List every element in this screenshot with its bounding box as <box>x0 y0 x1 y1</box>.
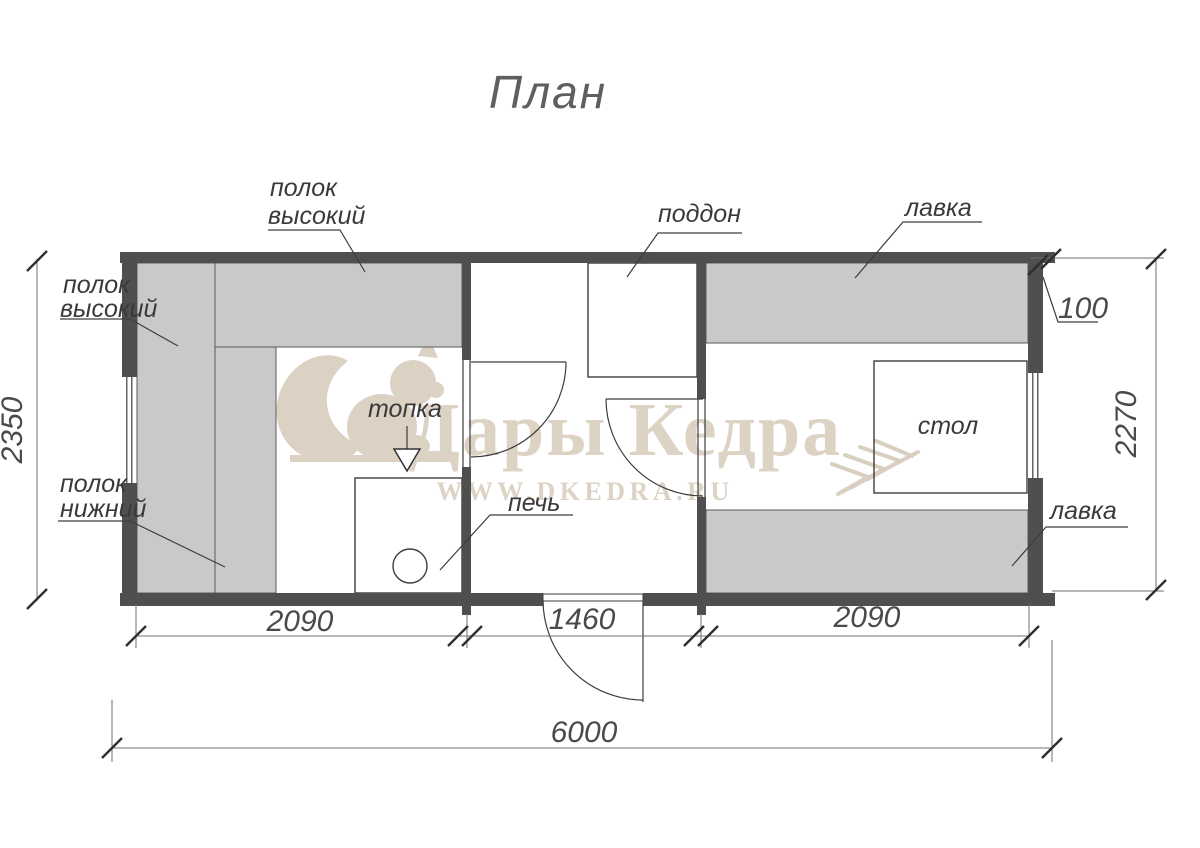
label-shelf-low-line2: нижний <box>60 495 147 523</box>
partition2-lower <box>697 497 706 593</box>
watermark-site: WWW.DKEDRA.RU <box>436 477 733 506</box>
window-left <box>127 377 132 483</box>
bench-top <box>706 263 1028 343</box>
floor-plan-drawing: Дары Кедра WWW.DKEDRA.RU План <box>0 0 1200 848</box>
partition2-upper <box>697 263 706 399</box>
label-bench-bottom: лавка <box>1048 497 1117 525</box>
partition1-upper <box>462 263 471 360</box>
label-shelf-high-left-line2: высокий <box>60 295 158 323</box>
plan-title: План <box>489 66 607 118</box>
dim-room1-width: 2090 <box>266 605 334 638</box>
dim-shower-width: 1460 <box>549 603 616 636</box>
label-firebox: топка <box>368 395 442 423</box>
wall-right-lower <box>1028 478 1043 605</box>
bench-bottom <box>706 510 1028 593</box>
label-shelf-high-top-line1: полок <box>270 174 338 202</box>
dim-room2-width: 2090 <box>833 601 901 634</box>
watermark-brand: Дары Кедра <box>408 388 843 472</box>
label-bench-top: лавка <box>903 194 972 222</box>
label-shelf-high-top-line2: высокий <box>268 202 366 230</box>
label-shelf-low-line1: полок <box>60 470 128 498</box>
partition1-lower <box>462 467 471 593</box>
label-stove: печь <box>508 489 560 517</box>
label-table: стол <box>918 412 979 440</box>
wall-right-upper <box>1028 252 1043 373</box>
shower-tray <box>588 263 697 377</box>
wall-top <box>120 252 1055 263</box>
dim-left-depth: 2350 <box>0 396 29 464</box>
window-right <box>1033 373 1038 478</box>
dim-right-depth: 2270 <box>1110 390 1143 458</box>
floor-plan-page: Дары Кедра WWW.DKEDRA.RU План <box>0 0 1200 848</box>
label-tray: поддон <box>658 200 741 228</box>
dim-total-width: 6000 <box>551 716 618 749</box>
cedar-branch-icon <box>832 441 918 494</box>
dim-wall-thickness: 100 <box>1058 292 1108 325</box>
